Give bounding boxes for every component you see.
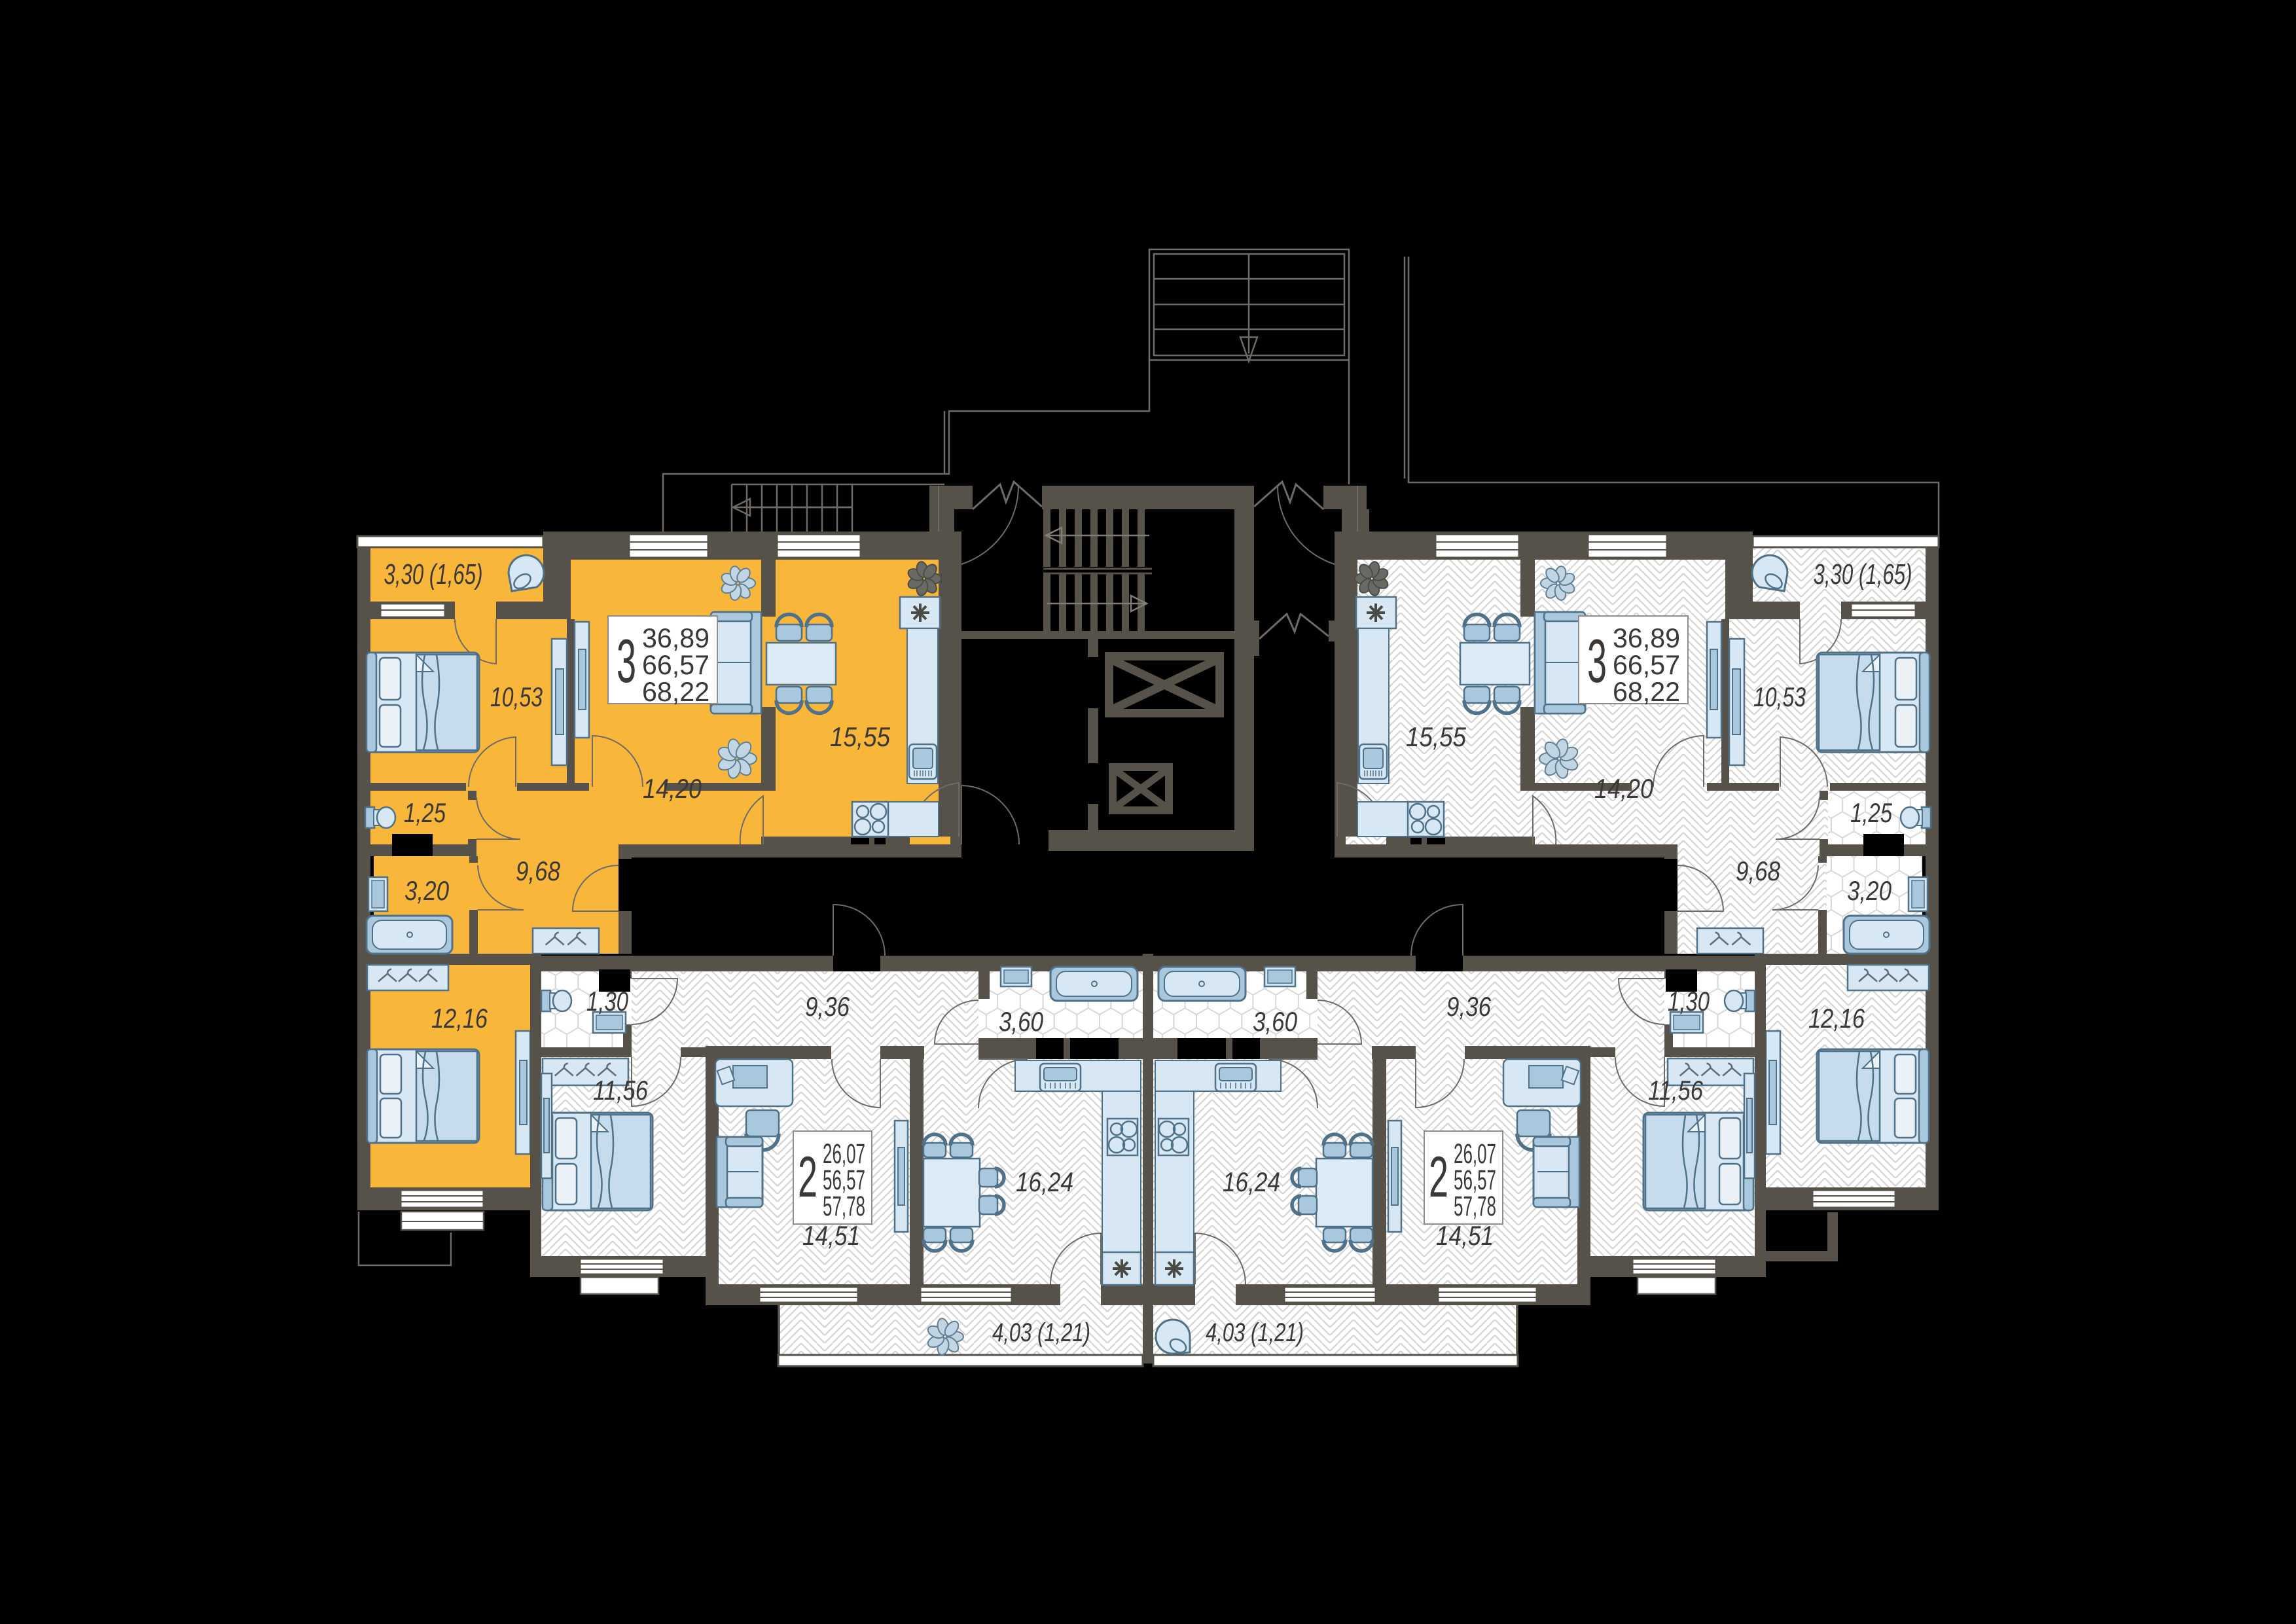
svg-text:9,36: 9,36 [805, 991, 850, 1022]
svg-text:14,20: 14,20 [1594, 773, 1654, 804]
svg-text:1,30: 1,30 [1668, 986, 1710, 1017]
svg-text:10,53: 10,53 [490, 681, 543, 712]
svg-text:10,53: 10,53 [1753, 681, 1806, 712]
svg-text:4,03 (1,21): 4,03 (1,21) [1206, 1318, 1304, 1347]
svg-text:1,25: 1,25 [1850, 797, 1892, 828]
svg-text:1,25: 1,25 [404, 797, 446, 828]
svg-text:68,22: 68,22 [1613, 676, 1680, 707]
svg-text:4,03 (1,21): 4,03 (1,21) [992, 1318, 1090, 1347]
svg-text:11,56: 11,56 [593, 1075, 649, 1106]
svg-text:14,51: 14,51 [802, 1220, 860, 1251]
svg-text:36,89: 36,89 [642, 623, 709, 653]
svg-text:3,60: 3,60 [1253, 1006, 1298, 1037]
svg-text:2: 2 [1429, 1144, 1448, 1209]
svg-text:14,51: 14,51 [1436, 1220, 1494, 1251]
svg-text:36,89: 36,89 [1613, 623, 1680, 653]
svg-text:11,56: 11,56 [1648, 1075, 1704, 1106]
svg-text:57,78: 57,78 [823, 1191, 865, 1222]
svg-text:3,30 (1,65): 3,30 (1,65) [384, 558, 483, 590]
svg-text:3,20: 3,20 [404, 875, 450, 906]
svg-text:2: 2 [798, 1144, 817, 1209]
svg-text:12,16: 12,16 [431, 1003, 488, 1034]
svg-text:3,30 (1,65): 3,30 (1,65) [1814, 558, 1912, 590]
svg-text:66,57: 66,57 [1613, 649, 1680, 680]
svg-text:3,60: 3,60 [999, 1006, 1044, 1037]
svg-text:57,78: 57,78 [1454, 1191, 1496, 1222]
svg-text:9,36: 9,36 [1446, 991, 1492, 1022]
svg-text:16,24: 16,24 [1223, 1166, 1280, 1197]
svg-text:3: 3 [617, 626, 636, 695]
svg-text:15,55: 15,55 [1406, 721, 1467, 752]
svg-text:14,20: 14,20 [643, 773, 702, 804]
svg-text:16,24: 16,24 [1016, 1166, 1073, 1197]
svg-text:66,57: 66,57 [642, 649, 709, 680]
svg-text:9,68: 9,68 [516, 856, 561, 886]
svg-text:9,68: 9,68 [1736, 856, 1781, 886]
svg-text:3: 3 [1587, 626, 1607, 695]
svg-text:15,55: 15,55 [830, 721, 891, 752]
svg-text:1,30: 1,30 [586, 986, 628, 1017]
svg-text:12,16: 12,16 [1808, 1003, 1865, 1034]
svg-text:68,22: 68,22 [642, 676, 709, 707]
svg-text:3,20: 3,20 [1847, 875, 1892, 906]
